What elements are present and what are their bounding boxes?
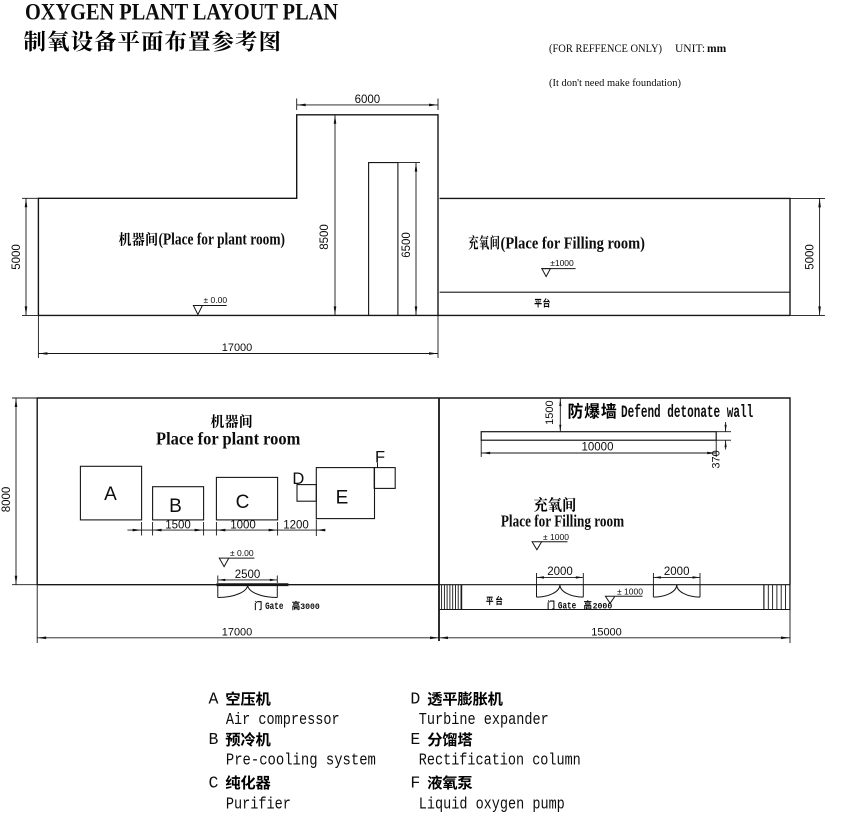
svg-text:Defend detonate wall: Defend detonate wall [621, 403, 753, 423]
svg-text:C: C [209, 773, 219, 792]
svg-text:10000: 10000 [582, 442, 614, 454]
svg-text:E: E [410, 730, 420, 749]
svg-text:(Place for Filling room): (Place for Filling room) [501, 233, 646, 252]
svg-text:± 0.00: ± 0.00 [204, 295, 228, 305]
svg-text:1500: 1500 [165, 520, 191, 532]
svg-text:2000: 2000 [593, 602, 613, 611]
svg-text:6000: 6000 [355, 94, 381, 106]
svg-text:UNIT:: UNIT: [675, 43, 705, 55]
svg-text:1500: 1500 [544, 400, 556, 424]
svg-text:C: C [236, 492, 250, 513]
svg-text:370: 370 [711, 450, 723, 468]
svg-text:mm: mm [707, 43, 727, 55]
svg-text:Purifier: Purifier [226, 794, 291, 813]
svg-text:17000: 17000 [222, 342, 253, 354]
svg-text:Liquid oxygen pump: Liquid oxygen pump [419, 794, 565, 813]
svg-text:±1000: ±1000 [550, 258, 574, 268]
svg-text:6500: 6500 [401, 232, 413, 258]
svg-text:D: D [292, 470, 304, 488]
svg-text:± 0.00: ± 0.00 [230, 548, 254, 558]
svg-text:OXYGEN PLANT LAYOUT PLAN: OXYGEN PLANT LAYOUT PLAN [25, 0, 338, 26]
svg-text:± 1000: ± 1000 [543, 532, 569, 542]
svg-text:1200: 1200 [283, 520, 309, 532]
svg-text:B: B [209, 730, 219, 749]
svg-text:± 1000: ± 1000 [617, 586, 643, 596]
svg-text:15000: 15000 [591, 626, 622, 638]
svg-text:Turbine expander: Turbine expander [419, 710, 549, 729]
svg-text:(FOR REFFENCE ONLY): (FOR REFFENCE ONLY) [549, 43, 662, 55]
svg-text:(Place for plant room): (Place for plant room) [159, 230, 286, 249]
svg-text:Gate: Gate [265, 602, 283, 613]
svg-text:E: E [336, 488, 349, 509]
svg-text:Rectification column: Rectification column [419, 751, 581, 770]
svg-text:A: A [209, 690, 219, 709]
svg-text:(It don't need make foundation: (It don't need make foundation) [549, 77, 681, 89]
svg-text:2000: 2000 [547, 566, 573, 578]
svg-text:Air compressor: Air compressor [226, 710, 340, 729]
svg-text:2000: 2000 [664, 566, 690, 578]
svg-text:F: F [410, 773, 420, 792]
svg-text:Gate: Gate [558, 601, 576, 612]
svg-text:8000: 8000 [1, 487, 13, 513]
svg-text:Place for Filling room: Place for Filling room [501, 512, 624, 531]
svg-text:3000: 3000 [300, 603, 320, 612]
svg-text:D: D [410, 690, 420, 709]
svg-text:A: A [104, 484, 117, 505]
svg-text:Place for plant room: Place for plant room [156, 429, 300, 449]
svg-text:5000: 5000 [805, 244, 817, 270]
svg-text:Pre-cooling system: Pre-cooling system [226, 751, 376, 770]
svg-text:F: F [375, 449, 385, 467]
svg-text:2500: 2500 [235, 569, 261, 581]
svg-text:5000: 5000 [11, 244, 23, 270]
svg-text:B: B [169, 496, 182, 517]
svg-text:8500: 8500 [319, 224, 331, 250]
svg-text:1000: 1000 [230, 520, 256, 532]
svg-text:17000: 17000 [222, 626, 253, 638]
